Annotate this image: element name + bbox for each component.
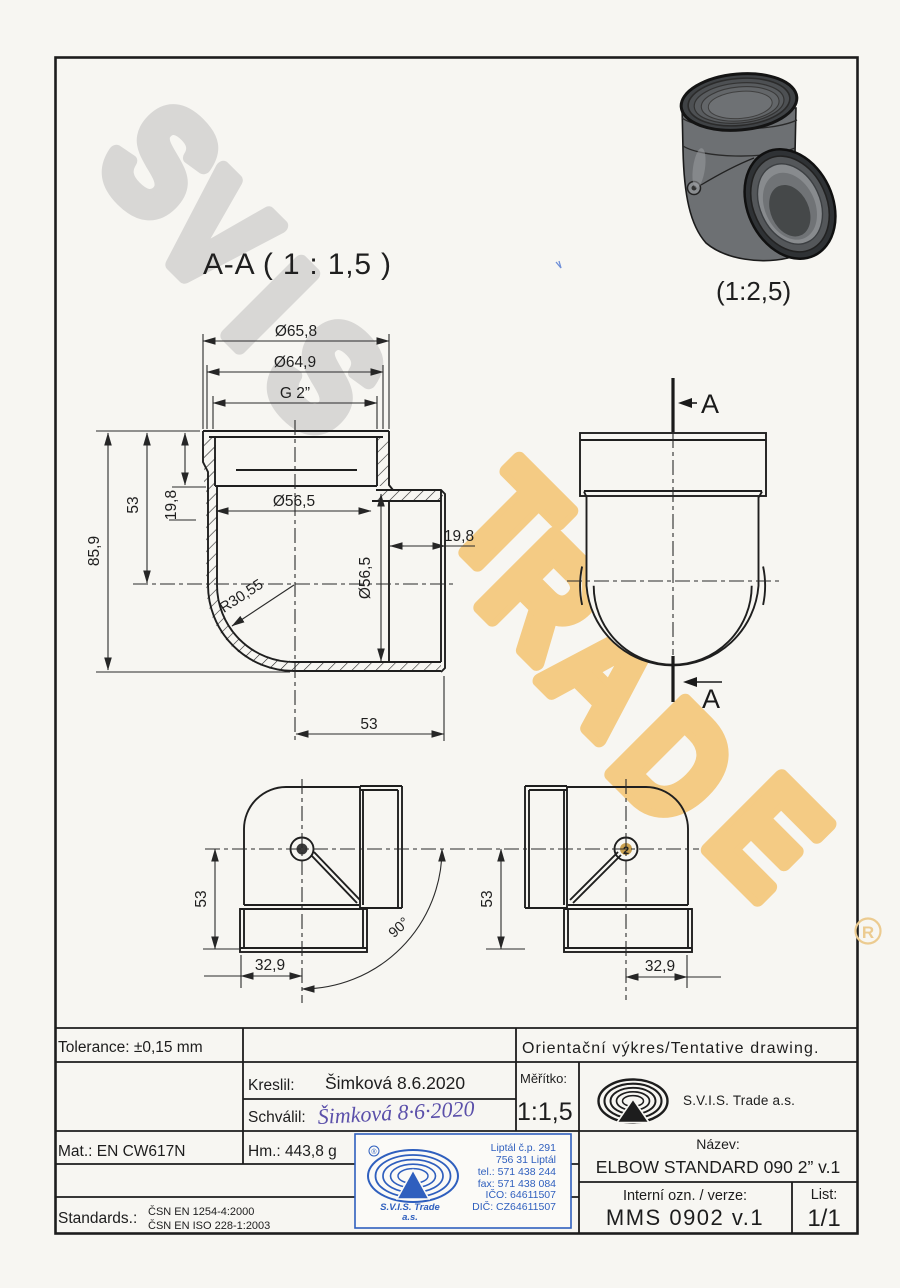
svg-text:Šimková 8.6.2020: Šimková 8.6.2020 bbox=[325, 1072, 465, 1093]
svg-text:Šimková 8·6·2020: Šimková 8·6·2020 bbox=[317, 1096, 475, 1129]
svg-text:Název:: Název: bbox=[696, 1136, 740, 1152]
svg-text:®: ® bbox=[371, 1148, 377, 1156]
svg-text:53: 53 bbox=[193, 890, 210, 907]
svg-text:1:1,5: 1:1,5 bbox=[517, 1098, 573, 1126]
svg-text:a.s.: a.s. bbox=[402, 1212, 418, 1223]
svg-text:A: A bbox=[701, 389, 719, 419]
svg-text:Ø56,5: Ø56,5 bbox=[357, 557, 374, 599]
svg-text:Schválil:: Schválil: bbox=[248, 1109, 306, 1126]
svg-text:S.V.I.S. Trade a.s.: S.V.I.S. Trade a.s. bbox=[683, 1093, 795, 1108]
svg-text:A-A ( 1 : 1,5 ): A-A ( 1 : 1,5 ) bbox=[203, 248, 392, 281]
svg-text:Orientační výkres/Tentative dr: Orientační výkres/Tentative drawing. bbox=[522, 1040, 820, 1057]
svg-text:R: R bbox=[862, 923, 874, 942]
svg-text:ČSN EN 1254-4:2000: ČSN EN 1254-4:2000 bbox=[148, 1205, 254, 1218]
svg-text:tel.: 571 438 244: tel.: 571 438 244 bbox=[478, 1166, 556, 1178]
svg-text:DIČ: CZ64611507: DIČ: CZ64611507 bbox=[472, 1200, 556, 1213]
svg-text:90°: 90° bbox=[386, 915, 413, 942]
svg-text:IČO: 64611507: IČO: 64611507 bbox=[486, 1188, 557, 1201]
svg-text:85,9: 85,9 bbox=[86, 536, 103, 566]
svg-text:19,8: 19,8 bbox=[163, 490, 180, 520]
svg-text:19,8: 19,8 bbox=[444, 528, 474, 545]
svg-text:53: 53 bbox=[479, 890, 496, 907]
svg-text:Měřítko:: Měřítko: bbox=[520, 1071, 567, 1086]
svg-text:(1:2,5): (1:2,5) bbox=[716, 276, 791, 306]
svg-text:Tolerance: ±0,15 mm: Tolerance: ±0,15 mm bbox=[58, 1039, 203, 1056]
svg-text:Kreslil:: Kreslil: bbox=[248, 1077, 295, 1094]
svg-text:32,9: 32,9 bbox=[645, 958, 675, 975]
svg-text:1/1: 1/1 bbox=[807, 1205, 840, 1232]
svg-text:Ø65,8: Ø65,8 bbox=[275, 323, 317, 340]
svg-text:Ø64,9: Ø64,9 bbox=[274, 354, 316, 371]
svg-text:ELBOW STANDARD 090 2” v.1: ELBOW STANDARD 090 2” v.1 bbox=[596, 1157, 840, 1177]
svg-text:Standards.:: Standards.: bbox=[58, 1210, 137, 1227]
svg-text:53: 53 bbox=[360, 716, 377, 733]
svg-text:756 31 Liptál: 756 31 Liptál bbox=[496, 1154, 556, 1166]
svg-text:Mat.: EN CW617N: Mat.: EN CW617N bbox=[58, 1143, 185, 1160]
svg-text:Interní ozn. / verze:: Interní ozn. / verze: bbox=[623, 1188, 747, 1204]
svg-text:ČSN EN ISO 228-1:2003: ČSN EN ISO 228-1:2003 bbox=[148, 1219, 270, 1232]
svg-text:R30,55: R30,55 bbox=[217, 576, 267, 617]
svg-text:32,9: 32,9 bbox=[255, 957, 285, 974]
svg-text:List:: List: bbox=[811, 1187, 838, 1203]
svg-text:53: 53 bbox=[125, 496, 142, 513]
svg-text:Liptál č.p. 291: Liptál č.p. 291 bbox=[491, 1142, 557, 1154]
svg-text:A: A bbox=[702, 684, 720, 714]
svg-text:Hm.: 443,8 g: Hm.: 443,8 g bbox=[248, 1143, 337, 1160]
svg-text:Ø56,5: Ø56,5 bbox=[273, 493, 315, 510]
svg-text:G 2”: G 2” bbox=[280, 385, 310, 402]
svg-text:MMS 0902 v.1: MMS 0902 v.1 bbox=[606, 1205, 764, 1230]
